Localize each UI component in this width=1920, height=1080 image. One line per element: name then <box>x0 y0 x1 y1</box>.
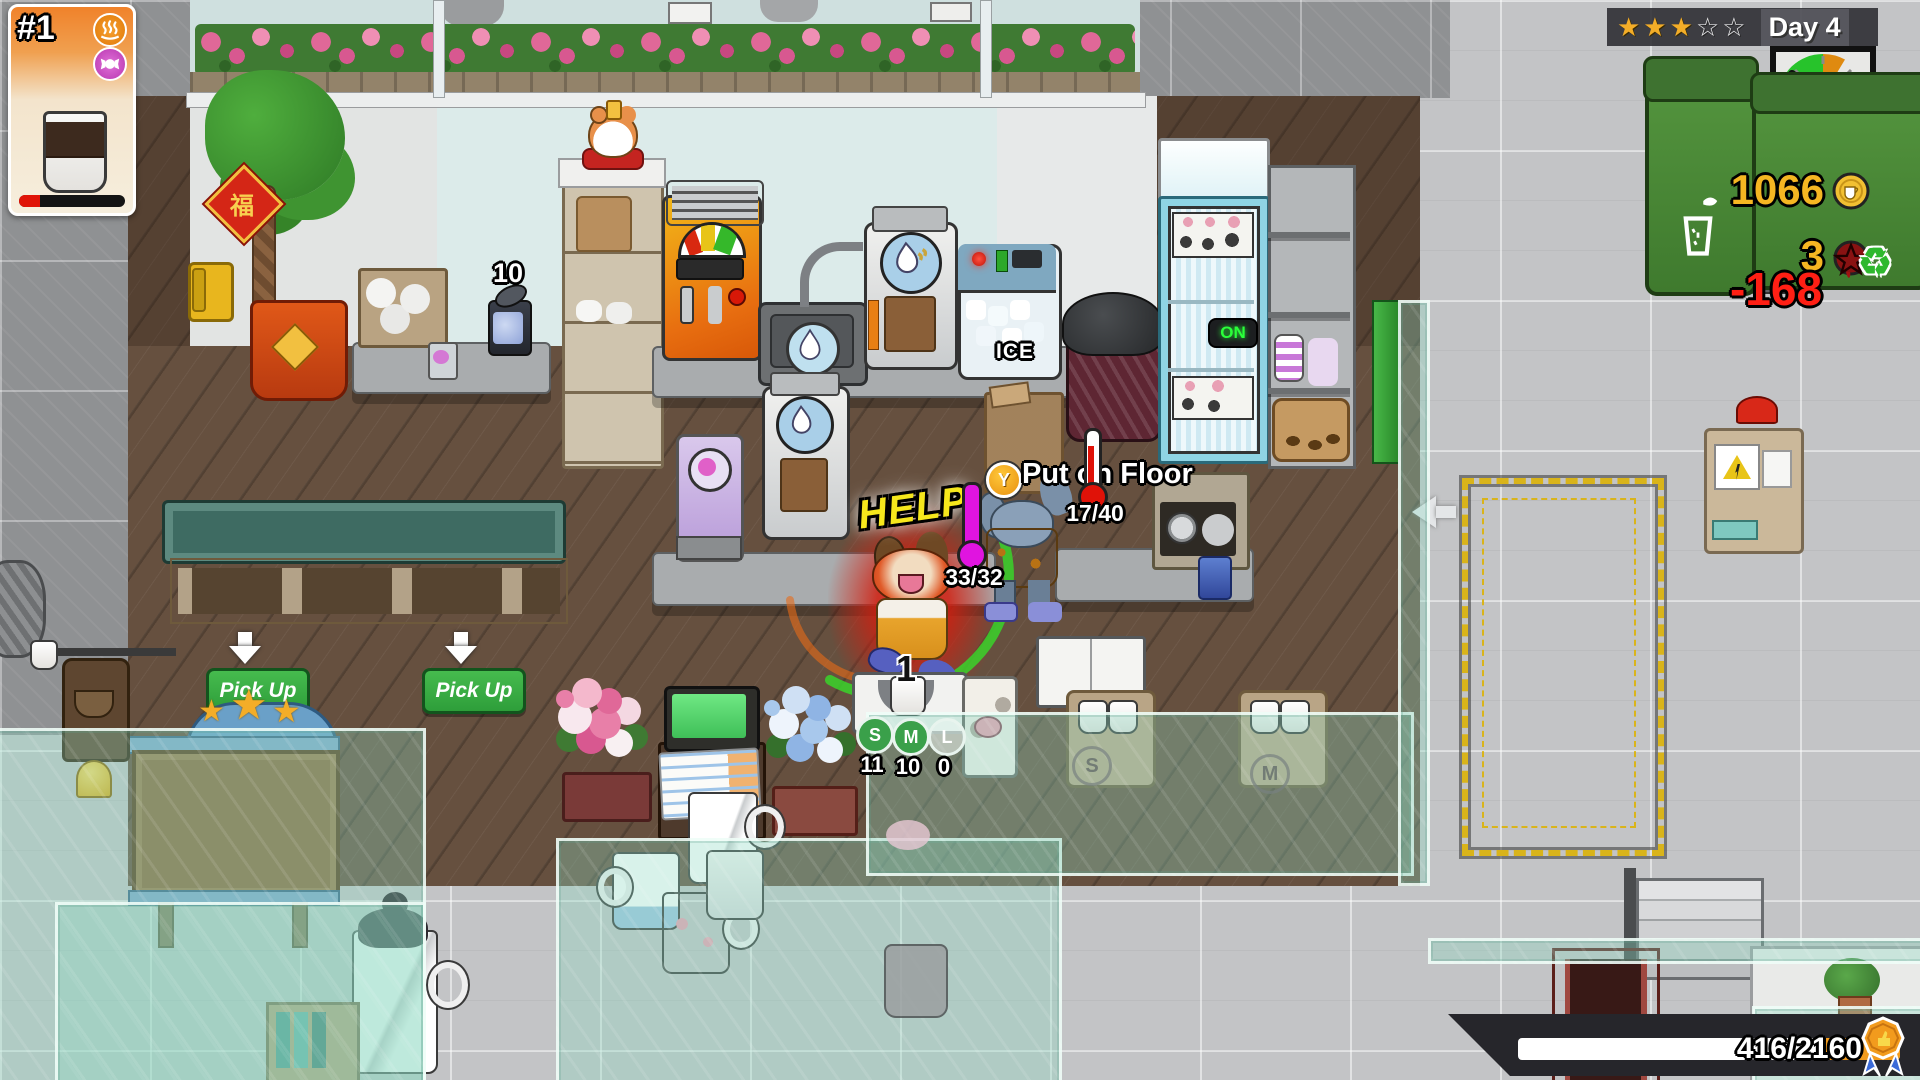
water-dispenser-2-badge <box>776 396 834 454</box>
milk-cartons-top <box>1172 212 1254 258</box>
tumbler-character <box>884 944 948 1018</box>
milk-cartons-bottom <box>1172 376 1254 420</box>
down-arrow-icon <box>229 646 261 664</box>
paper-bag <box>576 196 632 252</box>
order-number: #1 <box>17 9 55 48</box>
water-drop-badge <box>786 322 840 376</box>
shelf-board <box>1268 388 1350 394</box>
espresso-button <box>728 288 746 306</box>
flower-planter-row <box>195 24 1135 76</box>
table-front <box>170 558 568 624</box>
hazard-card <box>1762 450 1792 488</box>
ice-machine-slot <box>1012 250 1042 268</box>
blue-jar <box>1198 556 1232 600</box>
shelf-board <box>1268 232 1350 238</box>
hot-water-indicator <box>868 300 879 350</box>
ice-machine-light <box>972 252 986 266</box>
left-arrow-tail <box>1436 506 1456 518</box>
coffee-bean-bag <box>1272 398 1350 462</box>
can-lids <box>1166 512 1198 544</box>
shelf-cups <box>576 300 602 322</box>
fridge-on-badge: ON <box>1208 318 1258 348</box>
passerby-book <box>668 2 712 24</box>
glass-mullion <box>433 0 445 98</box>
room-badge-letter: S <box>1085 755 1098 778</box>
order-timer-track <box>19 195 125 207</box>
fridge-top-panel <box>1158 138 1270 202</box>
room-badge-letter: M <box>1262 763 1279 786</box>
sign-cup-engraving <box>74 690 114 718</box>
awning-star: ★ <box>198 694 225 729</box>
mug-handle <box>428 962 468 1008</box>
glass-wall-right <box>1428 938 1920 964</box>
glass-room-left-inner <box>55 902 426 1080</box>
passerby-book <box>930 2 972 22</box>
prompt-text: Put on Floor <box>1022 458 1193 491</box>
size-letter: L <box>942 727 953 748</box>
arrow-stem <box>238 632 252 646</box>
stars-empty: ☆☆ <box>1696 12 1749 43</box>
capacity-reading: 17/40 <box>1052 500 1138 527</box>
customer-mouth <box>898 574 924 594</box>
marshmallow-rolls <box>1274 334 1304 382</box>
steam-icon <box>93 13 127 47</box>
pink-planter <box>562 772 652 822</box>
candy-icon <box>93 47 127 81</box>
fu-sign-character: 福 <box>222 186 262 216</box>
arrow-stem <box>454 632 468 646</box>
ice-label: ICE <box>996 340 1034 364</box>
passerby <box>760 0 818 22</box>
y-button-prompt[interactable]: Y <box>986 462 1022 498</box>
green-pole <box>1372 300 1400 464</box>
crate-cups <box>366 278 396 308</box>
room-badge-s: S <box>1072 746 1112 786</box>
espresso-screen <box>676 258 744 280</box>
wall-phone-handset <box>192 268 206 312</box>
sign-post <box>58 648 176 656</box>
stars-filled: ★★★ <box>1617 12 1696 43</box>
size-badge-l: L <box>928 718 966 756</box>
glass-wall-cafe-right <box>1398 300 1430 886</box>
bubble-machine-dot <box>698 458 716 476</box>
capacity-meter-red-fill <box>1088 446 1094 486</box>
hard-hat <box>1736 396 1778 424</box>
coffee-cup-icon <box>43 111 107 193</box>
goal-text: 416/2160 <box>1712 1032 1862 1066</box>
size-badge-s: S <box>856 716 894 754</box>
rating-day-bar: ★★★ ☆☆ Day 4 <box>1607 8 1878 46</box>
goal-badge-icon <box>1856 1016 1910 1078</box>
awning-star: ★ <box>272 692 301 730</box>
recycle-icon: ♻ <box>1858 240 1892 285</box>
temp-reading: 33/32 <box>936 564 1012 591</box>
hot-water-badge <box>880 232 942 294</box>
size-count-s: 11 <box>854 752 890 778</box>
hot-water-top <box>872 206 948 232</box>
espresso-lever <box>680 286 694 324</box>
pickup-label: Pick Up <box>435 679 512 703</box>
barista-sandal <box>984 602 1018 622</box>
size-letter: S <box>869 725 881 746</box>
coin-icon <box>1832 172 1870 210</box>
game-screen: 福 10 ICE <box>0 0 1920 1080</box>
blue-bouquet <box>764 700 780 716</box>
hazard-sign <box>1714 444 1760 490</box>
size-letter: M <box>904 727 919 748</box>
stray-cup <box>30 640 58 670</box>
shelf-board <box>1268 312 1350 318</box>
fridge-on-label: ON <box>1220 323 1246 343</box>
ice-can-content <box>493 312 523 344</box>
blue-planter <box>772 786 858 836</box>
hazard-teal-strip <box>1712 520 1758 540</box>
register-screen-glow <box>672 694 746 738</box>
size-badge-m: M <box>892 718 930 756</box>
hot-water-slot <box>884 296 936 352</box>
ice-can-count: 10 <box>488 258 528 289</box>
queue-count: 1 <box>884 648 928 690</box>
size-count-l: 0 <box>926 754 962 780</box>
size-count-m: 10 <box>890 754 926 780</box>
expense-amount: -168 <box>1724 262 1828 316</box>
passerby <box>440 0 504 26</box>
build-plot-inner <box>1482 498 1636 828</box>
day-label: Day 4 <box>1761 9 1849 46</box>
down-arrow-icon <box>445 646 477 664</box>
pink-bouquet <box>556 690 574 708</box>
espresso-vent <box>666 180 764 226</box>
fridge-shelf-line <box>1168 368 1254 372</box>
ice-machine-switch <box>996 250 1008 272</box>
candy-jar-dot <box>433 350 449 364</box>
glass-mullion <box>980 0 992 98</box>
bubble-machine-base <box>676 536 742 560</box>
pink-blob <box>886 820 930 850</box>
ice-cubes <box>966 300 986 320</box>
y-button-label: Y <box>998 470 1010 491</box>
pickup-sign-2[interactable]: Pick Up <box>422 668 526 714</box>
fridge-shelf-line <box>1168 300 1254 304</box>
water-dispenser-2-top <box>770 372 840 396</box>
teal-table[interactable] <box>162 500 566 564</box>
hamster-coin <box>606 100 622 120</box>
awning-star-face: ★ <box>230 680 268 729</box>
room-badge-m: M <box>1250 754 1290 794</box>
order-card[interactable]: #1 <box>8 4 136 216</box>
money-amount: 1066 <box>1700 166 1824 214</box>
order-timer-fill <box>19 195 40 207</box>
trash-bag <box>1062 292 1164 356</box>
